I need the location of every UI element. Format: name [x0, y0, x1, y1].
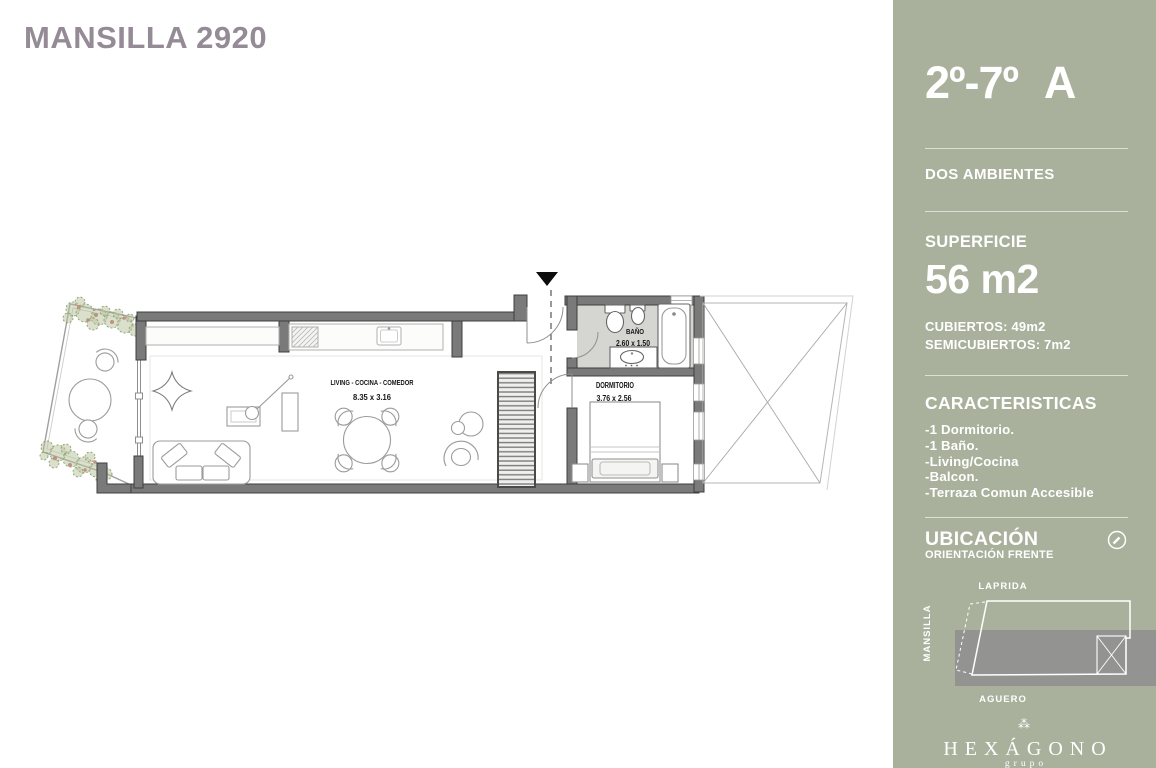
bano-label: BAÑO	[626, 327, 644, 336]
caracteristicas-label: CARACTERISTICAS	[925, 393, 1097, 414]
superficie-label: SUPERFICIE	[925, 233, 1027, 252]
divider	[925, 517, 1128, 518]
street-laprida: LAPRIDA	[978, 581, 1027, 592]
unit-letter: A	[1044, 60, 1076, 105]
living-label: LIVING - COCINA - COMEDOR	[331, 378, 415, 387]
living-furniture	[153, 372, 483, 484]
living-dims: 8.35 x 3.16	[353, 392, 391, 402]
kitchen-counter	[146, 324, 443, 350]
divider	[925, 148, 1128, 149]
list-item: -Balcon.	[925, 469, 1094, 485]
star-decor	[153, 372, 191, 410]
dormitorio-dims: 3.76 x 2.56	[597, 393, 632, 403]
location-map: LAPRIDA MANSILLA AGUERO ⁂ HEXÁGONO grupo	[893, 570, 1156, 768]
brand-glyph-icon: ⁂	[1018, 717, 1030, 731]
ubicacion-label: UBICACIÓN	[925, 528, 1038, 551]
superficie-value: 56 m2	[925, 259, 1039, 300]
brand-name: HEXÁGONO	[943, 737, 1112, 760]
dormitorio-label: DORMITORIO	[596, 381, 634, 390]
unit-designation: 2º-7º A	[925, 60, 1075, 105]
list-item: -Living/Cocina	[925, 454, 1094, 470]
semicubiertos: SEMICUBIERTOS: 7m2	[925, 337, 1071, 352]
orientacion-label: ORIENTACIÓN FRENTE	[925, 549, 1054, 561]
caracteristicas-list: -1 Dormitorio. -1 Baño. -Living/Cocina -…	[925, 422, 1094, 501]
cubiertos: CUBIERTOS: 49m2	[925, 319, 1046, 334]
brand-subtitle: grupo	[1005, 759, 1047, 768]
dwelling-type: DOS AMBIENTES	[925, 166, 1055, 183]
unit-floors: 2º-7º	[925, 60, 1018, 105]
divider	[925, 375, 1128, 376]
street-aguero: AGUERO	[979, 694, 1027, 705]
closet	[498, 372, 535, 487]
street-mansilla: MANSILLA	[922, 604, 933, 661]
list-item: -Terraza Comun Accesible	[925, 485, 1094, 501]
entry-arrow-icon	[536, 272, 558, 286]
bedroom-furniture	[572, 402, 678, 482]
bano-dims: 2.60 x 1.50	[616, 338, 650, 348]
list-item: -1 Baño.	[925, 438, 1094, 454]
divider	[925, 211, 1128, 212]
compass-icon	[1106, 529, 1128, 551]
balcony-furniture	[69, 345, 121, 446]
list-item: -1 Dormitorio.	[925, 422, 1094, 438]
info-sidebar: 2º-7º A DOS AMBIENTES SUPERFICIE 56 m2 C…	[893, 0, 1156, 768]
terrace-crossed-area	[700, 296, 853, 490]
floor-plan: LIVING - COCINA - COMEDOR 8.35 x 3.16 BA…	[0, 0, 893, 768]
